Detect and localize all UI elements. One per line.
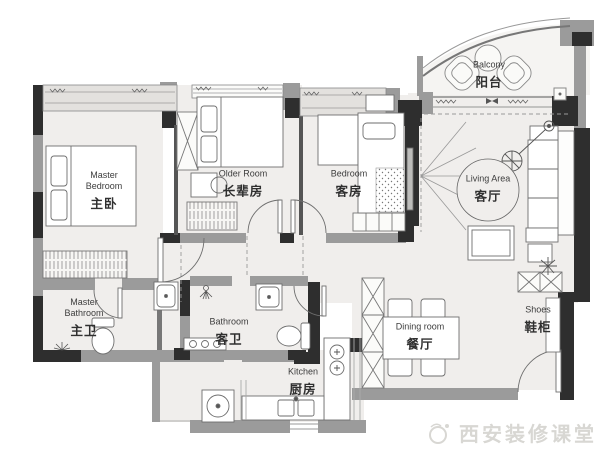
watermark-text: 西安装修课堂 — [459, 418, 597, 447]
shoe-cabinet-box — [546, 298, 560, 352]
master-toilet — [92, 318, 114, 354]
master-closet — [43, 251, 127, 278]
older-room-closet — [177, 112, 198, 170]
bedroom-wardrobe — [353, 213, 405, 231]
master-bed — [46, 146, 136, 226]
living-wall-cabinet — [518, 272, 562, 292]
older-room-bed — [197, 97, 283, 167]
guest-bath-counter — [184, 338, 226, 350]
older-room-wardrobe — [187, 202, 237, 230]
balcony-table — [475, 45, 501, 71]
hall-basin — [154, 282, 178, 310]
living-label-circle — [457, 159, 519, 221]
guest-basin-inside — [256, 284, 282, 310]
tall-cabinet — [362, 278, 384, 388]
watermark: 西安装修课堂 — [425, 418, 597, 447]
floor-plan-canvas: Master Bedroom 主卧 Older Room 长辈房 Bedroom… — [0, 0, 603, 457]
coffee-table — [468, 226, 514, 260]
washing-machine — [202, 390, 234, 422]
sliding-panel — [407, 148, 413, 210]
watermark-logo — [425, 419, 453, 447]
floor-plan-drawing — [0, 0, 603, 457]
